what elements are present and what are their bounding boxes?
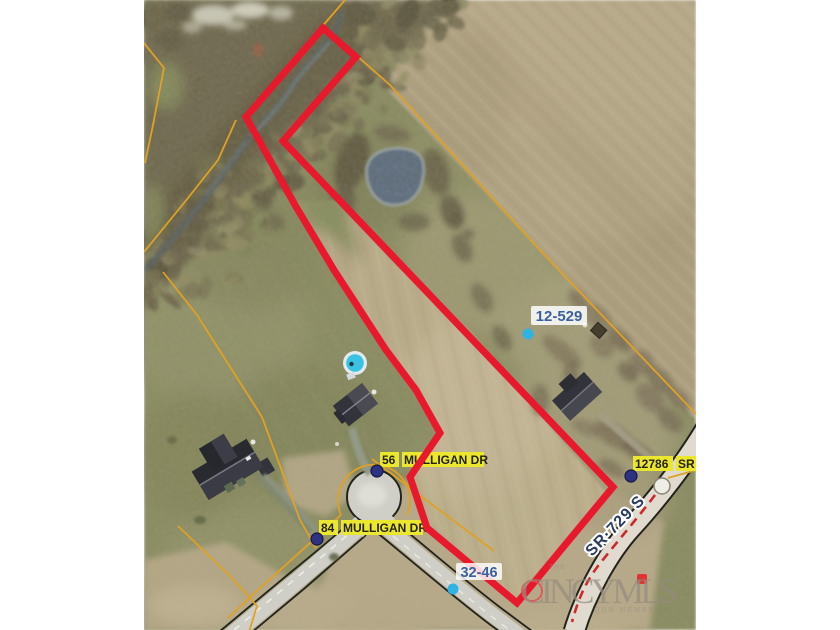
svg-text:12786: 12786 [635,457,669,471]
svg-text:12-529: 12-529 [536,308,583,325]
svg-text:CINCYMLS: CINCYMLS [521,571,678,611]
svg-text:OUR MEMBERS: OUR MEMBERS [594,607,669,614]
svg-text:84: 84 [321,521,335,535]
svg-text:56: 56 [382,453,396,467]
svg-text:THE: THE [549,564,566,571]
svg-text:MULLIGAN DR: MULLIGAN DR [343,521,427,535]
svg-text:32-46: 32-46 [460,565,497,581]
svg-text:SR: SR [678,457,695,471]
